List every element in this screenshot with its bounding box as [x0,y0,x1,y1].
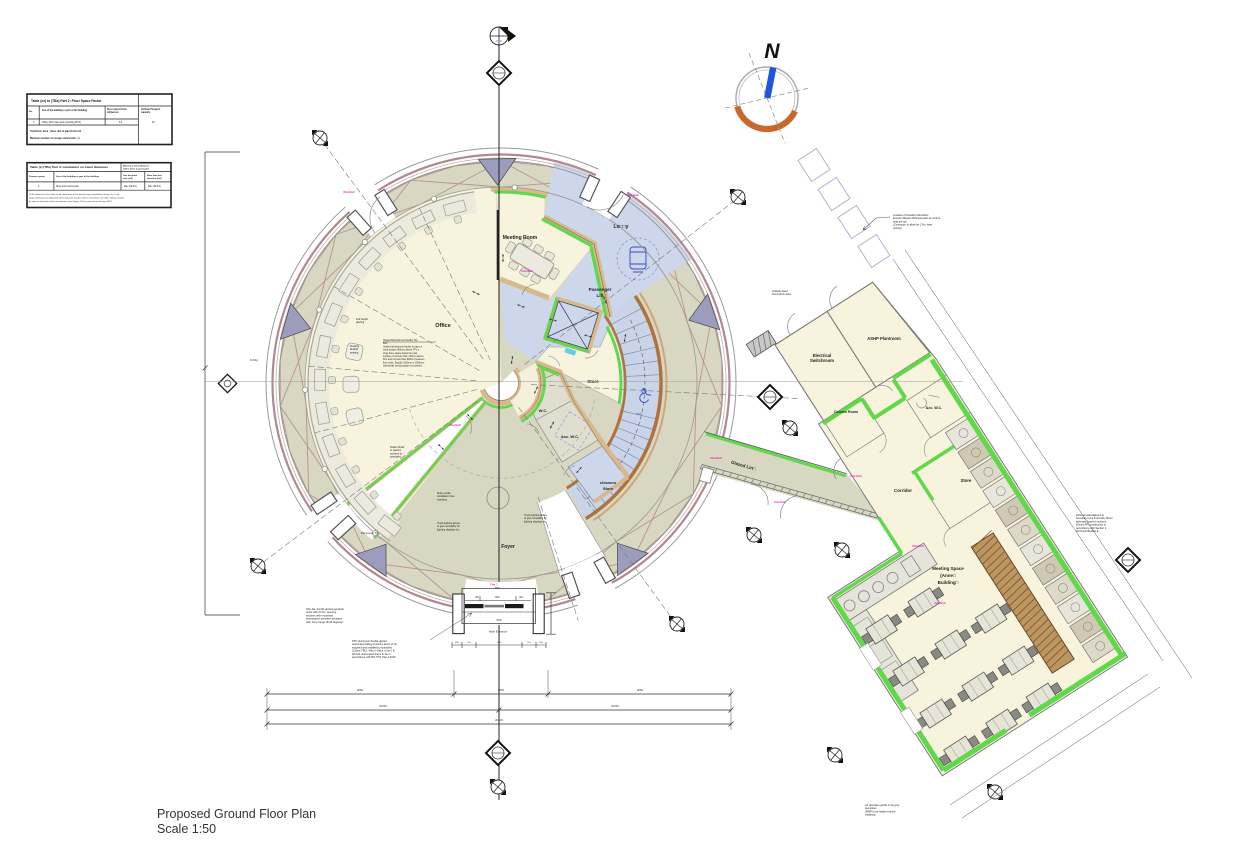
svg-text:Fire Exit: Fire Exit [912,544,923,548]
svg-text:capacity: capacity [141,111,151,114]
svg-text:6050: 6050 [357,688,364,692]
svg-text:only (m2): only (m2) [123,178,133,180]
svg-text:(1)The distances in this Table: (1)The distances in this Table are the d… [29,193,119,196]
svg-text:Foyer: Foyer [501,544,515,550]
svg-text:W.C.: W.C. [539,408,548,413]
svg-text:Hinged Refreshment Facility To: Hinged Refreshment Facility Top [383,339,418,342]
svg-text:glazing: glazing [356,320,365,324]
svg-text:1400: 1400 [494,597,500,599]
svg-text:(Anne□: (Anne□ [940,573,956,578]
svg-text:1700: 1700 [497,642,503,644]
svg-text:m2/person: m2/person [107,112,119,114]
svg-text:Uniform Passport: Uniform Passport [141,108,161,111]
svg-text:fixed winch area: fixed winch area [772,292,791,296]
svg-text:lighting displays etc: lighting displays etc [524,519,547,523]
svg-text:Meeting Room: Meeting Room [503,235,538,241]
svg-text:Meeting Space: Meeting Space [932,566,964,571]
svg-text:seating: seating [350,350,359,354]
svg-text:direction (m2): direction (m2) [147,177,162,180]
svg-text:Max (45.0m): Max (45.0m) [148,186,161,188]
svg-text:10000: 10000 [611,704,619,708]
svg-text:where there is poss# (m): where there is poss# (m) [123,168,149,171]
svg-text:No.: No. [29,111,33,113]
svg-text:Lift: Lift [597,293,604,298]
svg-text:3050: 3050 [498,688,505,692]
svg-text:Use of the building or part of: Use of the building or part of the build… [56,175,100,178]
svg-text:10000: 10000 [379,704,387,708]
svg-text:Fire □: Fire □ [490,583,497,587]
svg-text:Office: Office [435,323,451,329]
svg-text:Corridor: Corridor [894,488,912,493]
svg-text:Store: Store [603,486,614,491]
svg-text:Fire Exit: Fire Exit [627,193,638,197]
svg-text:Shop and commercial: Shop and commercial [56,185,79,188]
svg-text:Fire Exit: Fire Exit [343,190,354,194]
svg-text:Max (18.0m): Max (18.0m) [124,186,137,188]
svg-text:Minimum number of escape route: Minimum number of escape routes/exits = … [30,137,80,140]
svg-text:Fire Exit: Fire Exit [449,423,460,427]
svg-text:cleaners: cleaners [600,480,617,485]
svg-text:3050: 3050 [496,619,502,622]
svg-text:ASHP Plantroom: ASHP Plantroom [867,336,901,341]
svg-text:Lo□□y: Lo□□y [614,224,629,230]
svg-text:accordance with BS 7071 Part 4: accordance with BS 7071 Part 4:2015. [352,655,397,659]
svg-text:pumps): pumps) [893,226,902,230]
svg-text:Scale 1:50: Scale 1:50 [157,822,216,836]
svg-text:Floor space factor: Floor space factor [107,108,127,111]
svg-text:be taken as two-thirds of the: be taken as two-thirds of the travel dis… [29,200,112,203]
svg-text:Technical Booklet E: Technical Booklet E [1076,529,1099,533]
svg-text:Table (x) (TBs) Part 3: Limit: Table (x) (TBs) Part 3: Limitations on t… [30,165,108,169]
svg-text:Building□: Building□ [938,580,959,585]
svg-text:Fire Exit: Fire Exit [710,456,721,460]
svg-text:Passenger: Passenger [589,287,612,292]
svg-text:Total Floor Area - (floor dim: Total Floor Area - (floor dim of plan) 1… [30,130,82,133]
svg-text:Acc. W.C.: Acc. W.C. [561,434,579,439]
svg-text:Proposed Ground Floor Plan: Proposed Ground Floor Plan [157,807,316,821]
svg-text:Table (xx) to (TBs) Part 2: F: Table (xx) to (TBs) Part 2: Floor Space … [31,99,102,103]
svg-text:lighting displays etc: lighting displays etc [437,527,460,531]
svg-text:Main Entrance: Main Entrance [489,630,507,634]
svg-text:Fire Exit: Fire Exit [934,601,945,605]
svg-text:Maximum travel distance: Maximum travel distance [123,165,150,168]
svg-text:cladding): cladding) [865,813,876,817]
svg-text:Purpose group: Purpose group [29,176,45,178]
svg-text:Acc. W.C.: Acc. W.C. [926,406,942,410]
svg-text:standing: standing [437,497,447,501]
svg-text:specialist: specialist [390,455,401,459]
svg-text:Use of the building or part of: Use of the building or part of the build… [42,109,88,112]
svg-text:3050: 3050 [494,588,500,590]
svg-text:More than one: More than one [147,174,163,177]
svg-text:500: 500 [636,412,641,416]
svg-text:20800: 20800 [495,718,503,722]
svg-text:F10: F10 [496,39,502,43]
svg-text:Fire Exit: Fire Exit [521,269,532,273]
svg-text:6050: 6050 [637,688,644,692]
svg-text:8=60kg: 8=60kg [250,359,259,362]
svg-text:Flat screen TV: Flat screen TV [361,531,378,535]
svg-text:known when plans are deposited: known when plans are deposited, direct d… [29,196,124,199]
svg-text:Fire Exit: Fire Exit [774,500,785,504]
svg-text:N: N [764,40,780,63]
svg-text:Switchroom: Switchroom [810,358,834,363]
svg-text:Fire Exit: Fire Exit [850,474,861,478]
svg-text:wheelchair turning space is pr: wheelchair turning space is provided. [383,365,423,368]
svg-text:Office (floor plan area exclud: Office (floor plan area excluding WCs) [42,121,81,124]
svg-text:(adj. temp range 18-26 degrees: (adj. temp range 18-26 degrees) [306,620,343,624]
svg-text:One direction: One direction [123,174,138,177]
svg-text:Store: Store [961,478,972,483]
svg-text:Comms Room: Comms Room [834,410,858,414]
